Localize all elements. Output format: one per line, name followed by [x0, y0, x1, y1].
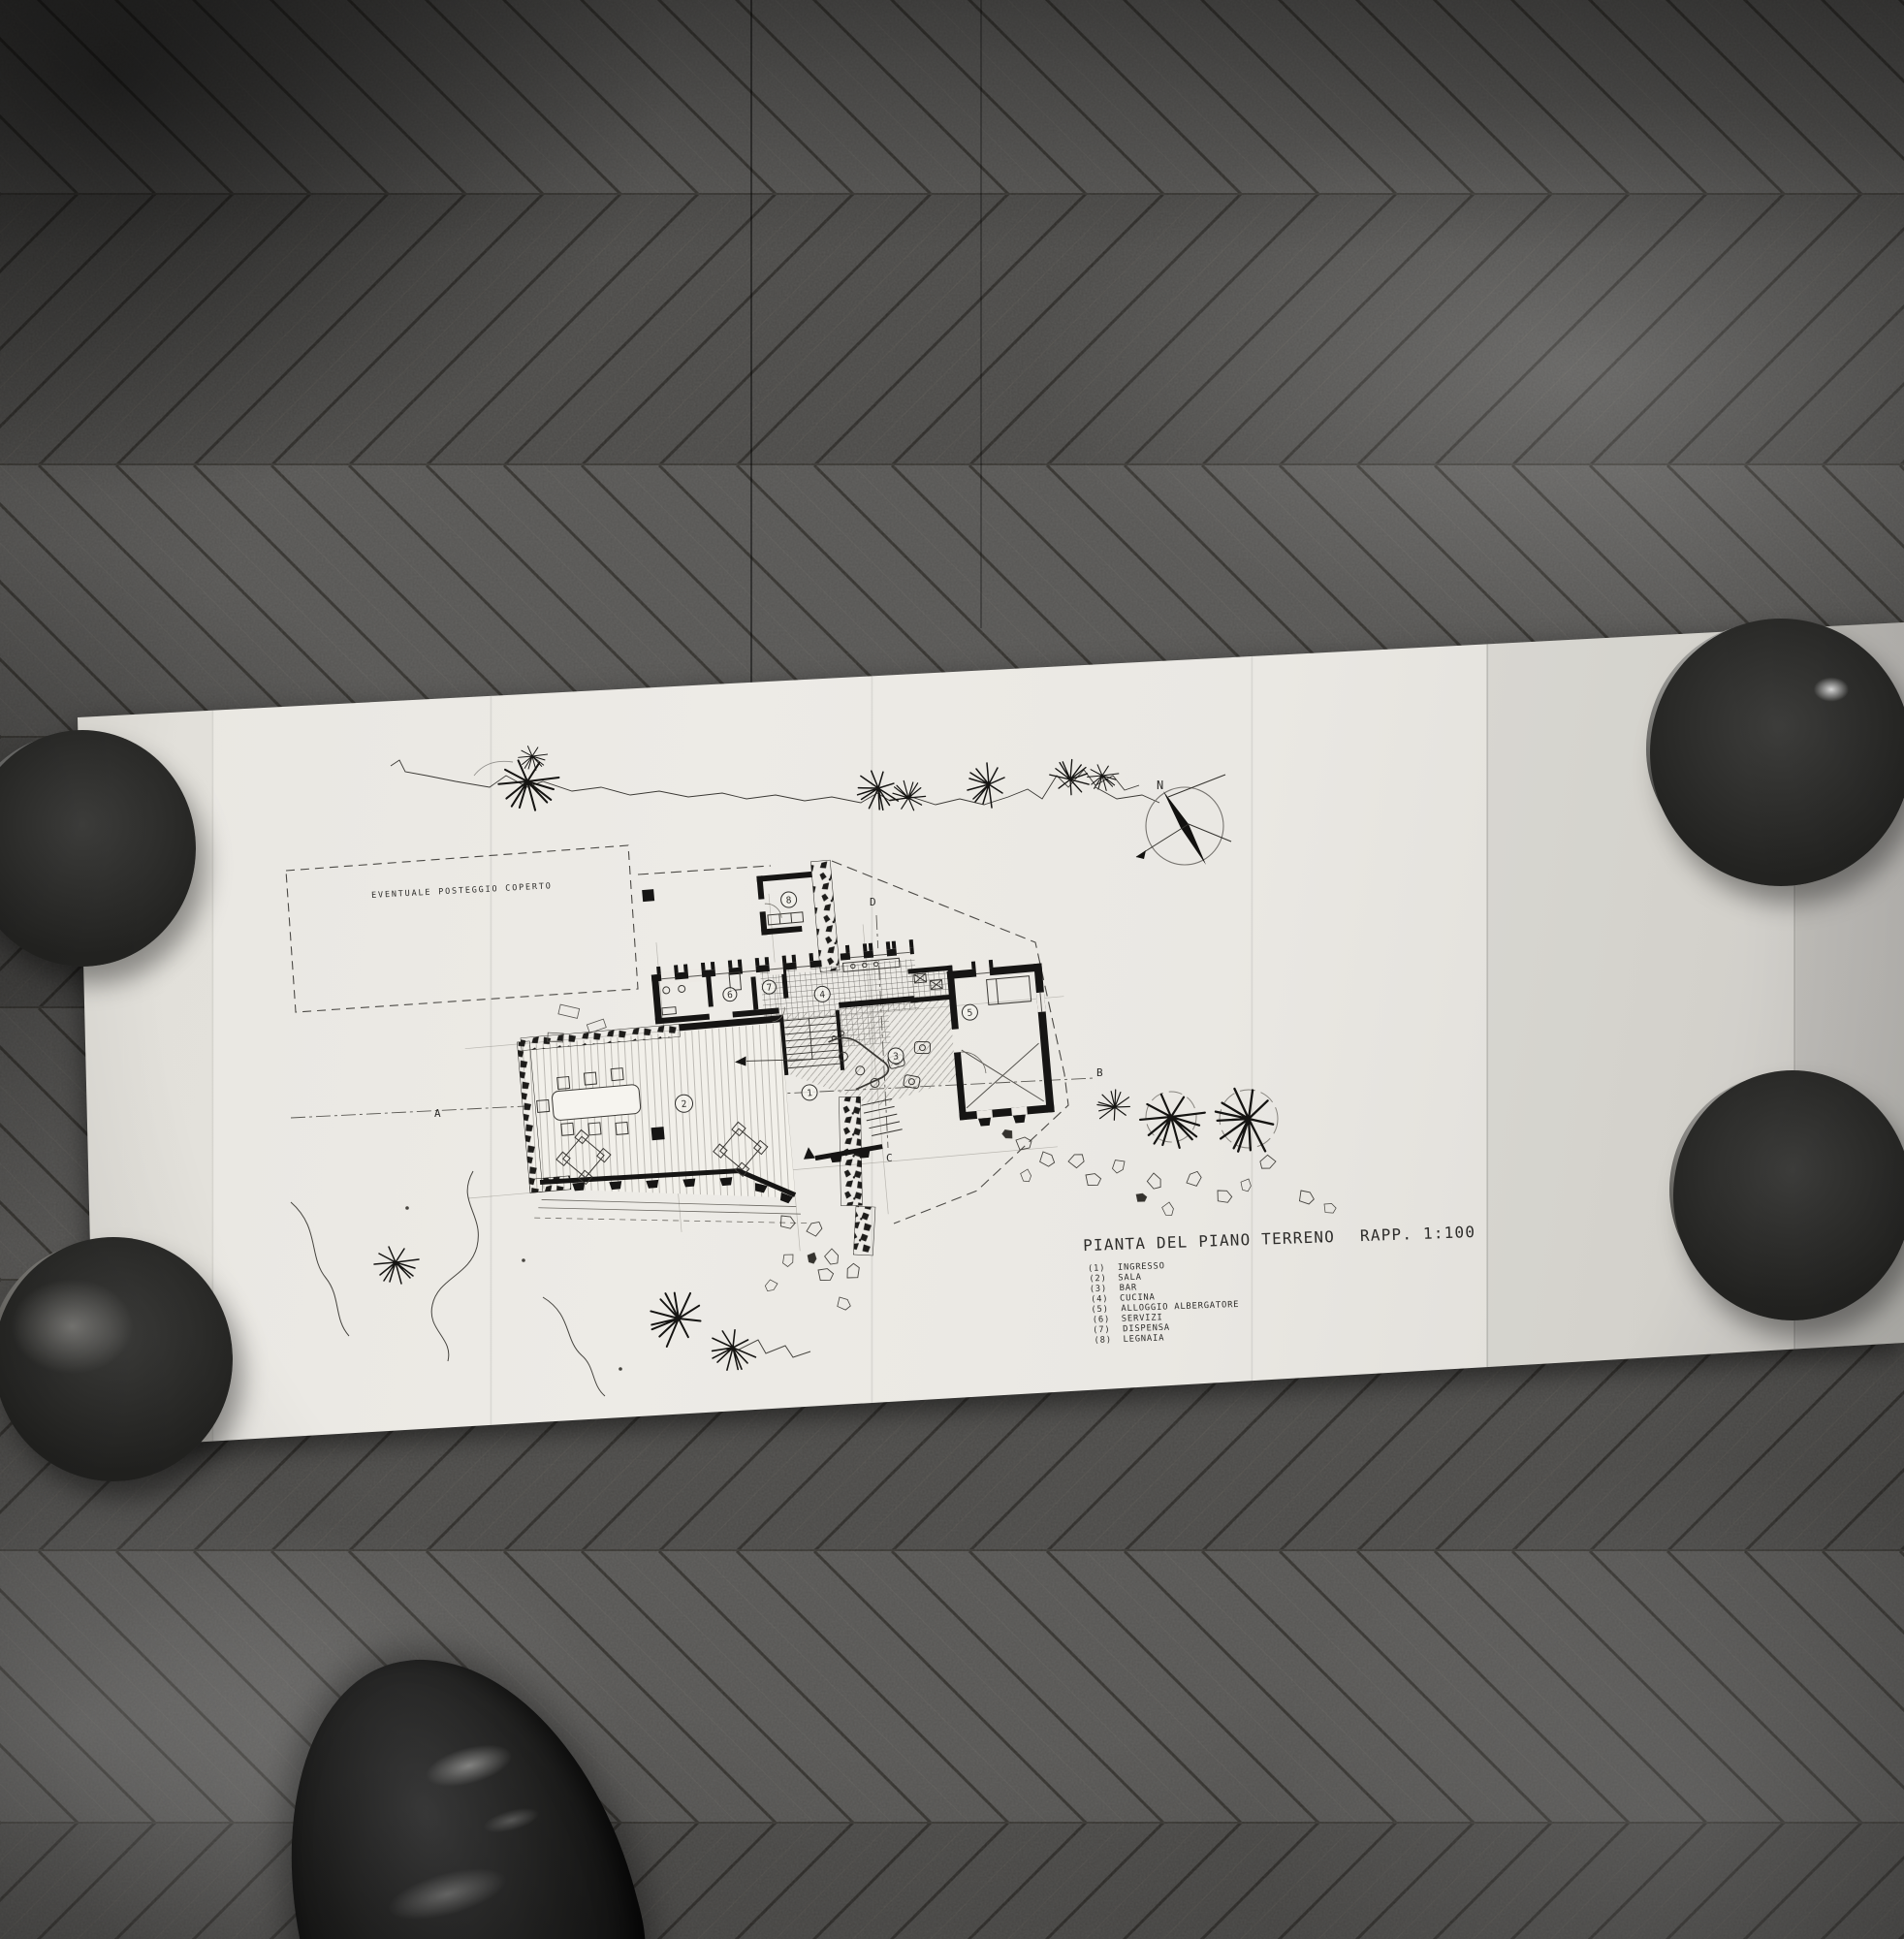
plate-bottom-left: [0, 1241, 217, 1466]
plate-top-left: [0, 734, 180, 951]
plan-sheet-wrap: [0, 0, 1904, 1939]
plate-top-right: [1646, 622, 1896, 871]
plan-sheet: [0, 0, 1904, 1939]
fold-crease: [871, 543, 873, 1512]
plate-right-middle: [1669, 1074, 1896, 1305]
fold-crease: [1251, 543, 1253, 1512]
fold-crease: [490, 543, 492, 1512]
photograph: N EVENTUALE POSTEGGIO COPERTO A B C D: [0, 0, 1904, 1939]
fold-crease: [1486, 543, 1489, 1512]
